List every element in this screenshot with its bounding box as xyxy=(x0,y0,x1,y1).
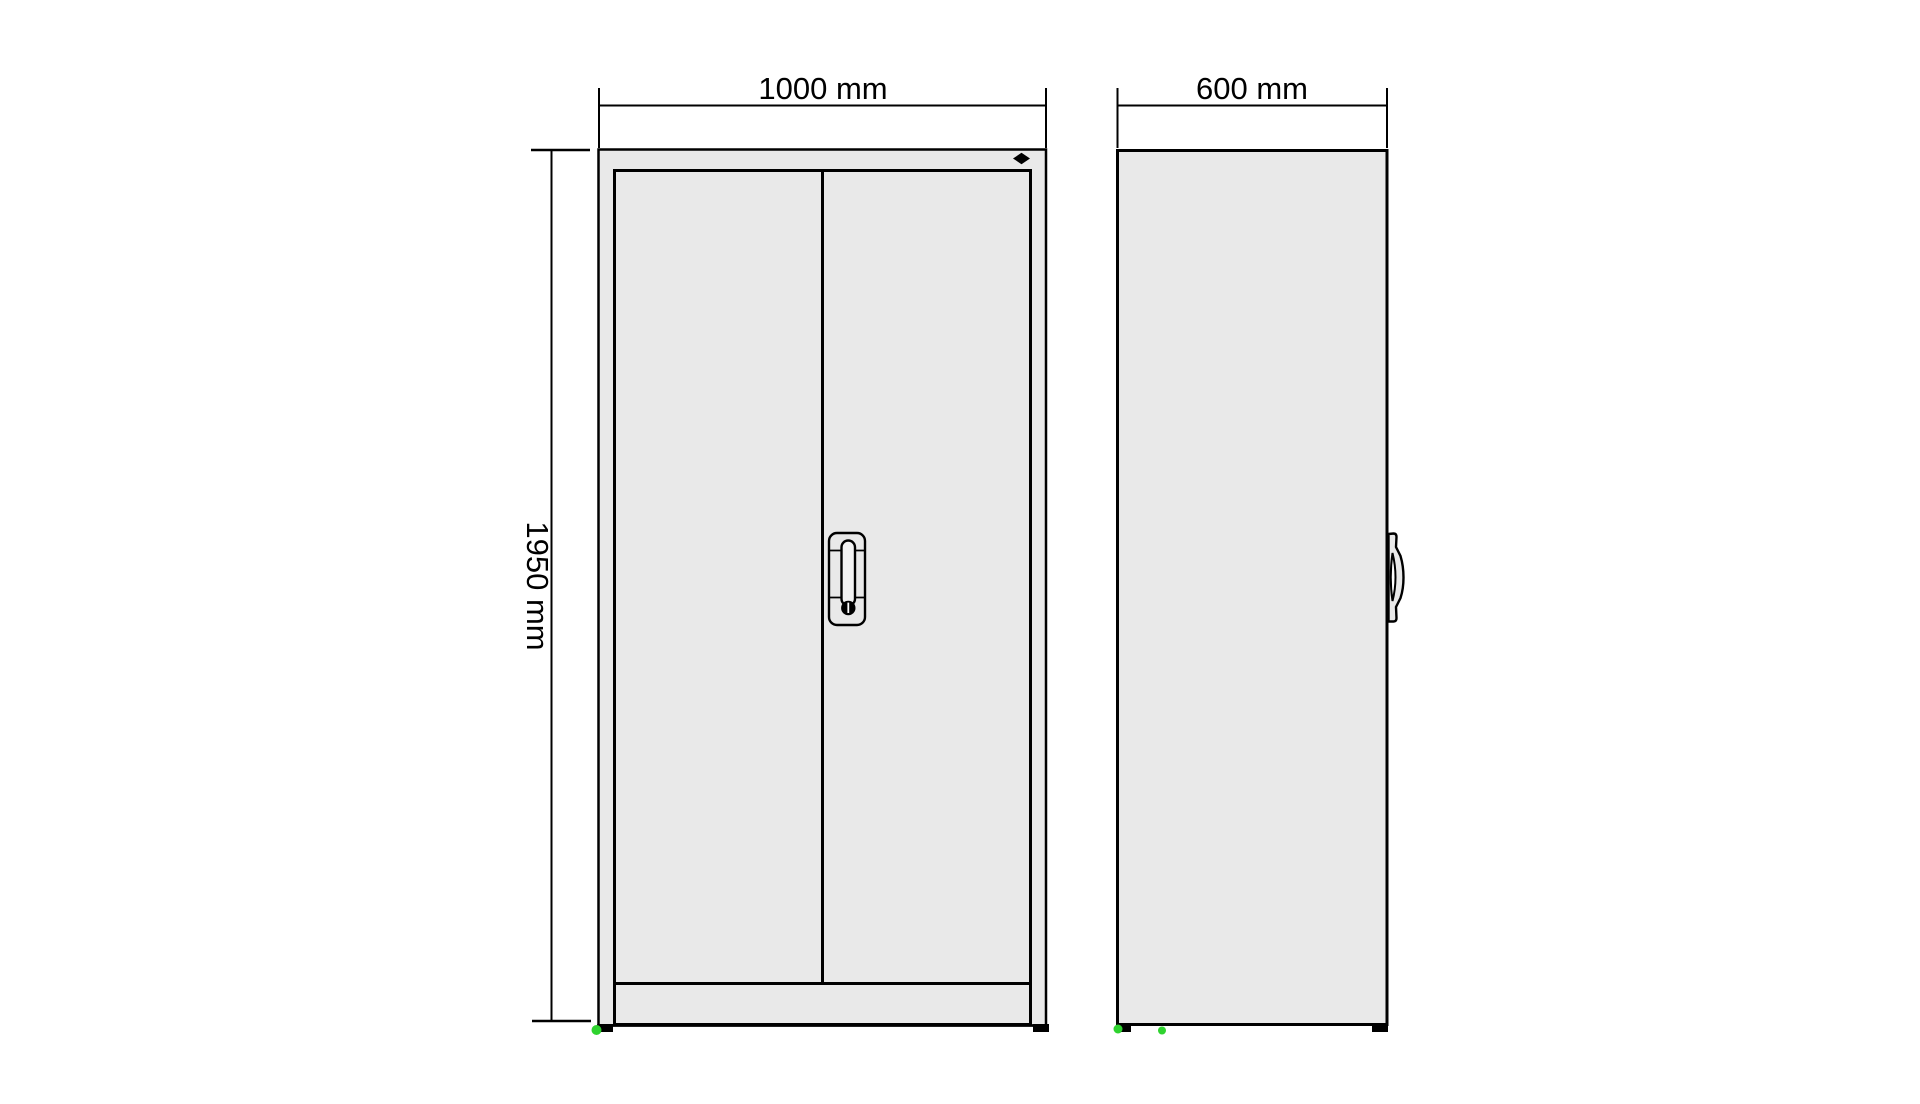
side-cabinet-body xyxy=(1118,151,1388,1025)
handle-grip-bar xyxy=(842,541,856,606)
front-right-foot xyxy=(1033,1024,1049,1032)
technical-drawing-page: 1000 mm 600 mm 1950 mm xyxy=(0,0,1920,1104)
side-right-foot xyxy=(1372,1024,1388,1032)
side-depth-label: 600 mm xyxy=(1196,71,1308,106)
dimension-side-depth: 600 mm xyxy=(1118,71,1388,148)
front-width-label: 1000 mm xyxy=(758,71,887,106)
side-handle-grip-lens xyxy=(1391,553,1396,601)
side-view xyxy=(1114,151,1404,1035)
dimension-front-height: 1950 mm xyxy=(520,150,591,1021)
front-plinth xyxy=(615,984,1031,1025)
lock-keyway-icon xyxy=(847,603,849,613)
dimension-front-width: 1000 mm xyxy=(599,71,1046,148)
cabinet-drawing: 1000 mm 600 mm 1950 mm xyxy=(0,0,1920,1104)
front-handle xyxy=(829,533,865,625)
side-green-foot-dot-icon xyxy=(1114,1025,1123,1034)
front-view xyxy=(592,150,1050,1036)
front-green-foot-dot-icon xyxy=(592,1025,602,1035)
side-green-foot-dot-icon xyxy=(1158,1027,1166,1035)
side-handle-profile xyxy=(1389,534,1404,622)
front-height-label: 1950 mm xyxy=(520,521,555,650)
front-left-door xyxy=(615,171,823,984)
